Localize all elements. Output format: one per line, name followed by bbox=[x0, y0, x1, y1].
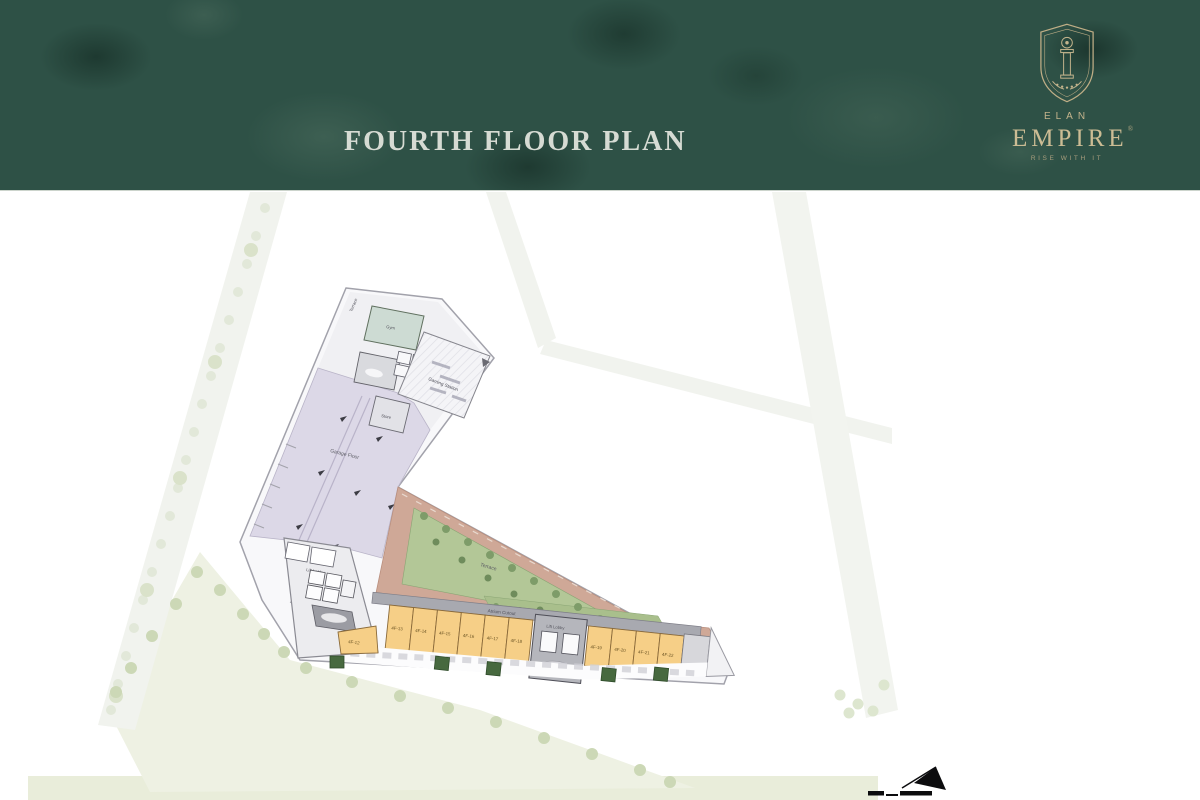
lift-cab bbox=[306, 585, 323, 600]
lift-cab bbox=[322, 588, 339, 603]
planter bbox=[434, 656, 449, 670]
right-road bbox=[772, 192, 898, 718]
brand-tagline: RISE WITH IT bbox=[1012, 156, 1122, 163]
lift-cab bbox=[540, 631, 558, 653]
brand-name-main: EMPIRE® bbox=[1012, 126, 1122, 151]
north-road bbox=[486, 192, 556, 348]
lift-cab bbox=[308, 570, 325, 585]
lift-cab bbox=[325, 573, 342, 588]
lift-cab bbox=[562, 633, 580, 655]
planter bbox=[486, 662, 501, 676]
core-room bbox=[310, 547, 336, 567]
brand-crest-icon bbox=[1038, 22, 1096, 104]
scale-bar-segment bbox=[900, 791, 932, 796]
scale-bar-segment bbox=[868, 791, 884, 796]
strip-tip bbox=[706, 628, 739, 680]
brand-name-text: EMPIRE bbox=[1012, 125, 1128, 152]
planter bbox=[653, 667, 668, 681]
site-surroundings bbox=[28, 192, 898, 800]
planter bbox=[330, 656, 344, 668]
north-arrow-scale bbox=[868, 767, 946, 796]
page-title: FOURTH FLOOR PLAN bbox=[344, 126, 687, 158]
core-cell bbox=[397, 351, 412, 364]
core-room bbox=[285, 542, 310, 562]
brand-name-top: ELAN bbox=[1012, 112, 1122, 122]
floor-plan-canvas: Garage Floor Gym Gaming Station Store Te… bbox=[0, 190, 1200, 800]
service-room bbox=[340, 580, 356, 598]
header-banner: FOURTH FLOOR PLAN ELAN EMPIRE® RISE WITH… bbox=[0, 0, 1200, 191]
scale-bar-segment bbox=[886, 794, 898, 796]
trademark-symbol: ® bbox=[1128, 125, 1137, 133]
planter bbox=[601, 668, 616, 682]
brand-logo: ELAN EMPIRE® RISE WITH IT bbox=[1012, 22, 1122, 163]
